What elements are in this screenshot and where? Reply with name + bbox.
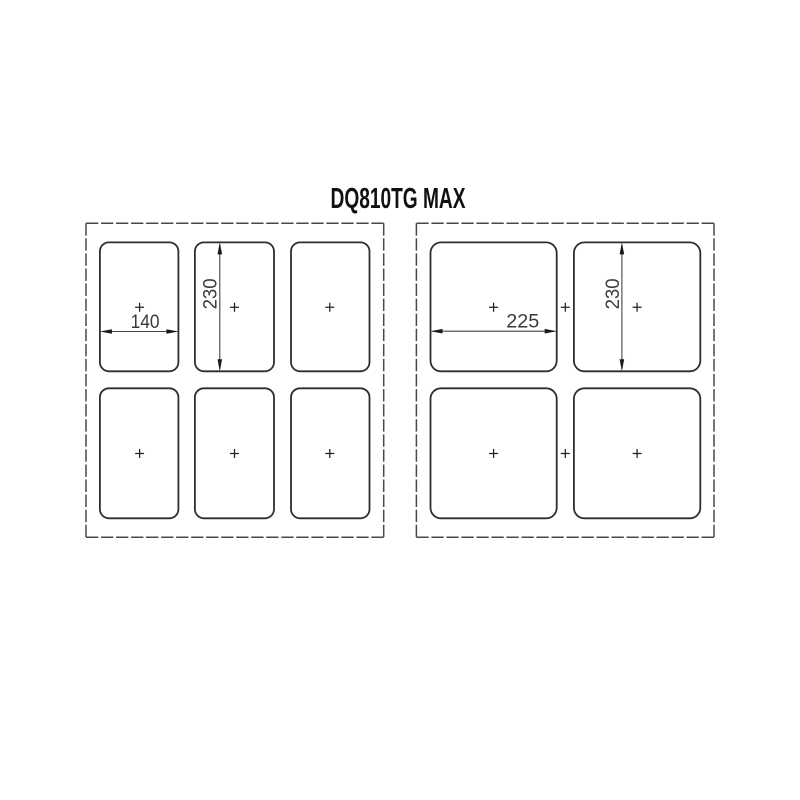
svg-text:DQ810TG MAX: DQ810TG MAX <box>331 183 466 215</box>
svg-text:230: 230 <box>602 278 624 309</box>
svg-text:230: 230 <box>200 278 222 309</box>
svg-text:140: 140 <box>131 311 160 333</box>
svg-text:225: 225 <box>506 311 539 333</box>
